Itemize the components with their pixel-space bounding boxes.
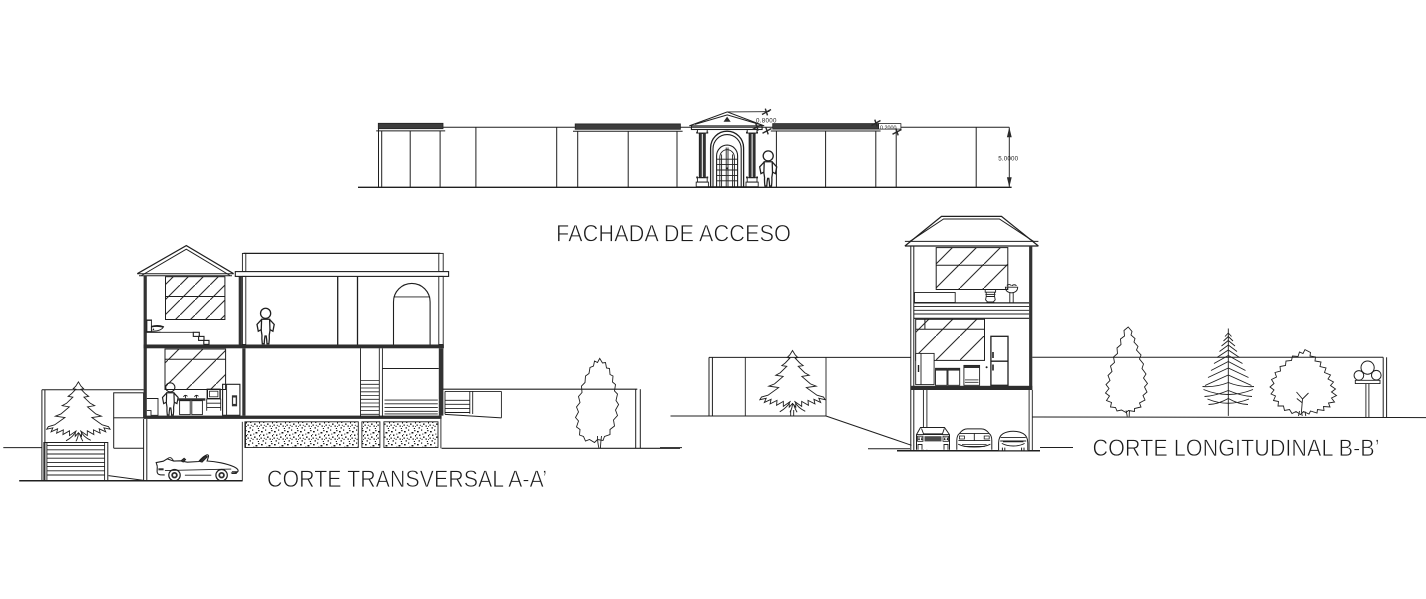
svg-text:CORTE LONGITUDINAL B-B’: CORTE LONGITUDINAL B-B’	[1093, 435, 1380, 462]
svg-text:CORTE TRANSVERSAL A-A’: CORTE TRANSVERSAL A-A’	[267, 466, 547, 493]
svg-text:0.8000: 0.8000	[756, 118, 777, 125]
svg-text:5.0000: 5.0000	[998, 155, 1018, 162]
svg-text:0.2000: 0.2000	[880, 126, 897, 132]
svg-text:FACHADA DE ACCESO: FACHADA DE ACCESO	[556, 221, 791, 248]
